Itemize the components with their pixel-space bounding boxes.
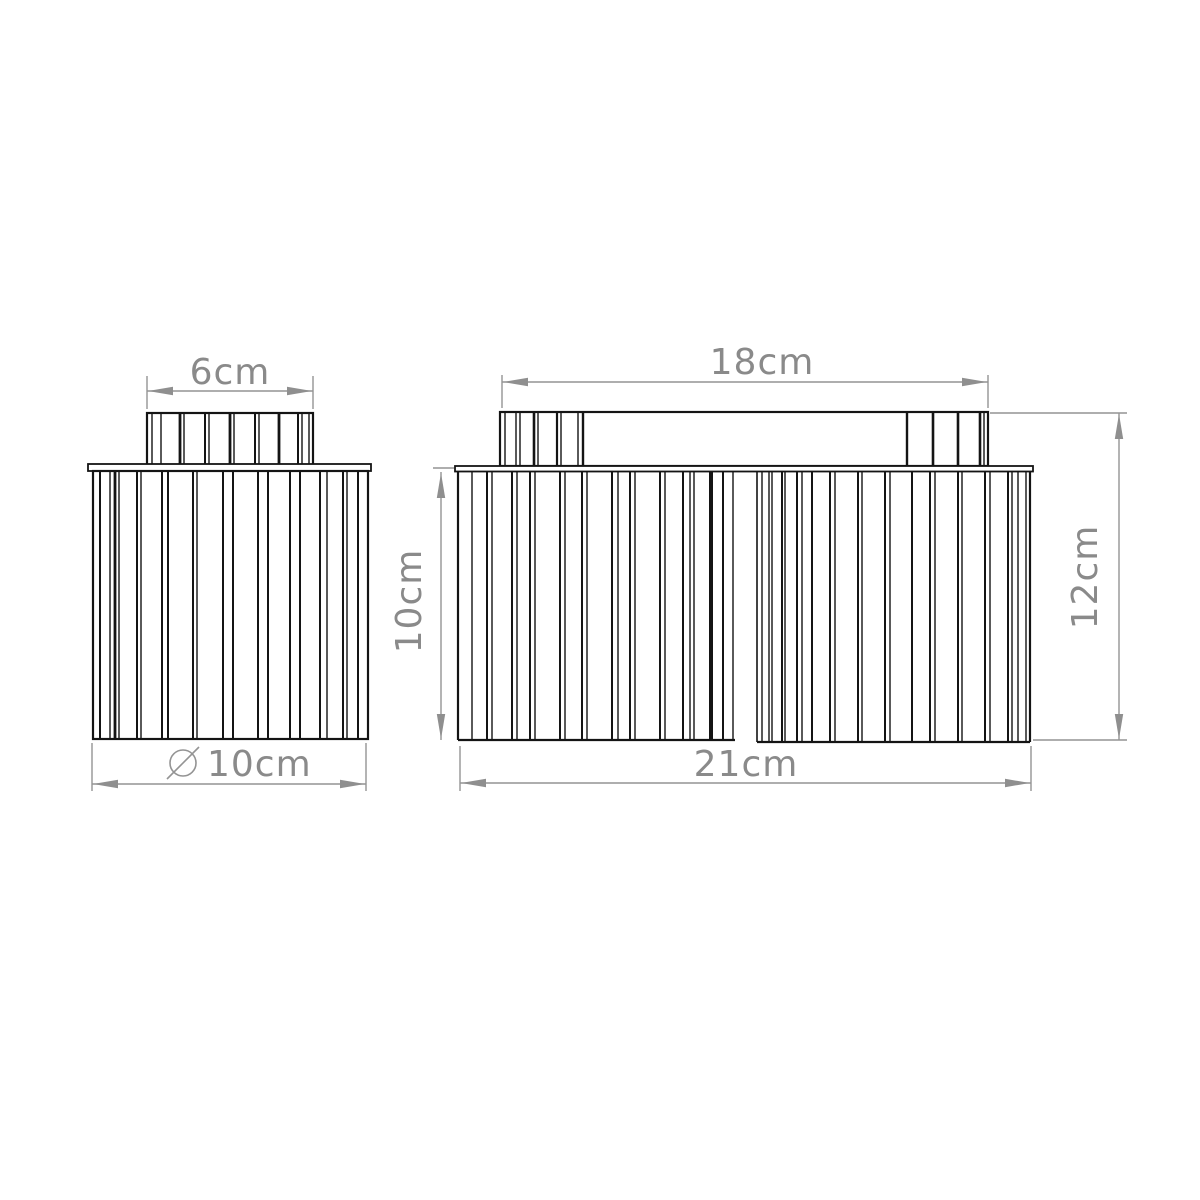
right-mount-plate — [455, 466, 1033, 472]
dim-label-6cm: 6cm — [190, 352, 271, 393]
dimension-drawing: 6cm 10cm — [0, 0, 1200, 1200]
dimension-arrowhead — [340, 780, 365, 788]
left-dim-diameter: 10cm — [92, 743, 366, 791]
right-dim-shade-height: 10cm — [389, 468, 454, 740]
dimension-arrowhead — [148, 387, 173, 395]
left-view: 6cm 10cm — [88, 352, 371, 791]
dimension-arrowhead — [1115, 414, 1123, 439]
left-dim-top-width: 6cm — [147, 352, 313, 409]
dimension-arrowhead — [962, 378, 987, 386]
shade-pleats — [762, 472, 1026, 741]
dimension-arrowhead — [93, 780, 118, 788]
right-dim-top-width: 18cm — [502, 342, 988, 408]
diameter-symbol — [167, 747, 199, 779]
right-shade-right-segment — [757, 471, 1030, 742]
shade-pleats — [472, 472, 733, 739]
dim-label-12cm: 12cm — [1065, 525, 1106, 630]
dimension-arrowhead — [437, 473, 445, 498]
dimension-arrowhead — [287, 387, 312, 395]
dimension-arrowhead — [1115, 714, 1123, 739]
dimension-arrowhead — [503, 378, 528, 386]
dimension-arrowhead — [461, 779, 486, 787]
dimension-arrowhead — [437, 714, 445, 739]
dim-label-10cm-diameter: 10cm — [207, 744, 312, 785]
dim-label-18cm: 18cm — [710, 342, 815, 383]
right-dim-total-height: 12cm — [990, 413, 1127, 740]
canopy-outline — [500, 412, 988, 466]
dim-label-10cm-height: 10cm — [389, 549, 430, 654]
right-shade-left-segment — [458, 471, 735, 740]
drawing-canvas: 6cm 10cm — [0, 0, 1200, 1200]
dimension-arrowhead — [1005, 779, 1030, 787]
right-dim-total-width: 21cm — [460, 744, 1031, 791]
dim-label-21cm: 21cm — [694, 744, 799, 785]
